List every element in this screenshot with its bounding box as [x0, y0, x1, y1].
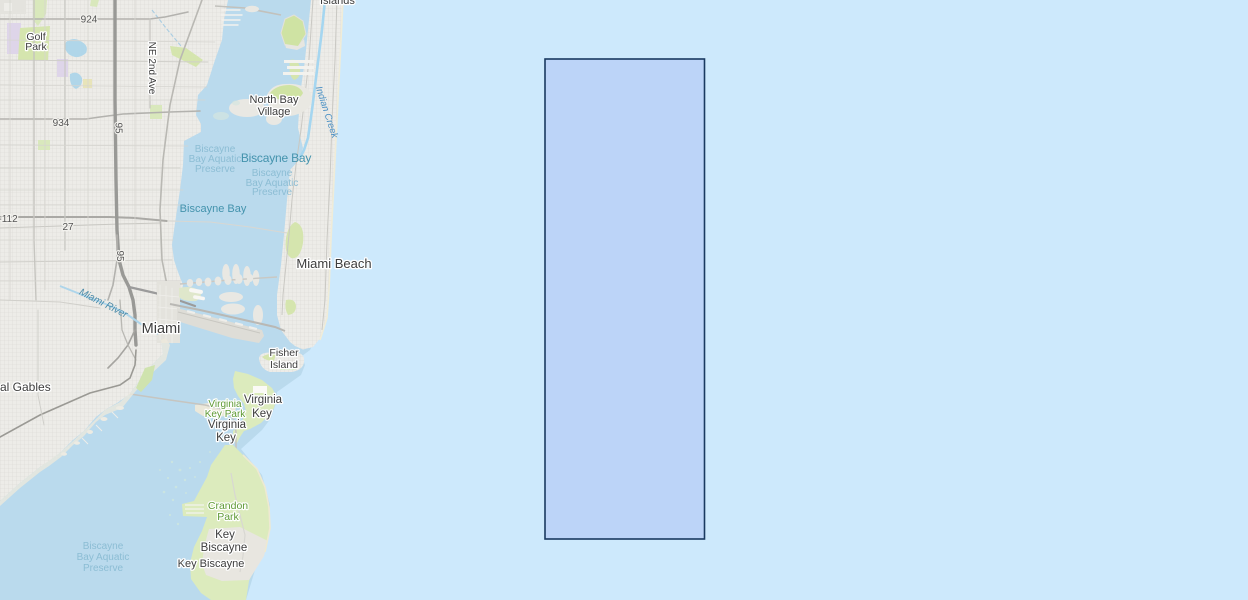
svg-text:Village: Village — [258, 106, 291, 118]
svg-text:Biscayne: Biscayne — [83, 541, 124, 552]
svg-text:al Gables: al Gables — [0, 380, 51, 394]
svg-text:Park: Park — [25, 41, 47, 53]
svg-text:Virginia: Virginia — [208, 419, 247, 431]
svg-text:-112: -112 — [0, 214, 18, 225]
svg-text:Bay Aquatic: Bay Aquatic — [77, 552, 130, 563]
svg-text:Preserve: Preserve — [83, 563, 123, 574]
svg-text:Key: Key — [215, 529, 235, 541]
svg-text:Key Biscayne: Key Biscayne — [178, 558, 245, 570]
svg-text:Biscayne Bay: Biscayne Bay — [241, 151, 312, 165]
svg-text:Park: Park — [217, 511, 239, 523]
svg-text:North Bay: North Bay — [250, 94, 299, 106]
svg-text:95: 95 — [113, 122, 124, 134]
svg-text:Biscayne: Biscayne — [201, 542, 248, 554]
svg-text:NE 2nd Ave: NE 2nd Ave — [146, 42, 157, 95]
svg-text:Key: Key — [252, 408, 272, 420]
svg-text:Key: Key — [216, 432, 236, 444]
svg-text:934: 934 — [53, 118, 70, 129]
svg-text:95: 95 — [114, 250, 125, 262]
svg-text:Miami: Miami — [142, 321, 181, 337]
svg-text:924: 924 — [81, 15, 98, 26]
svg-text:27: 27 — [62, 222, 74, 233]
svg-text:Virginia: Virginia — [244, 394, 283, 406]
svg-text:Island: Island — [270, 359, 298, 371]
svg-text:Fisher: Fisher — [269, 347, 299, 359]
svg-text:Preserve: Preserve — [195, 164, 235, 175]
svg-text:Preserve: Preserve — [252, 187, 292, 198]
svg-text:Islands: Islands — [320, 0, 355, 7]
svg-text:Miami Beach: Miami Beach — [296, 256, 371, 271]
svg-text:Biscayne Bay: Biscayne Bay — [180, 203, 247, 215]
